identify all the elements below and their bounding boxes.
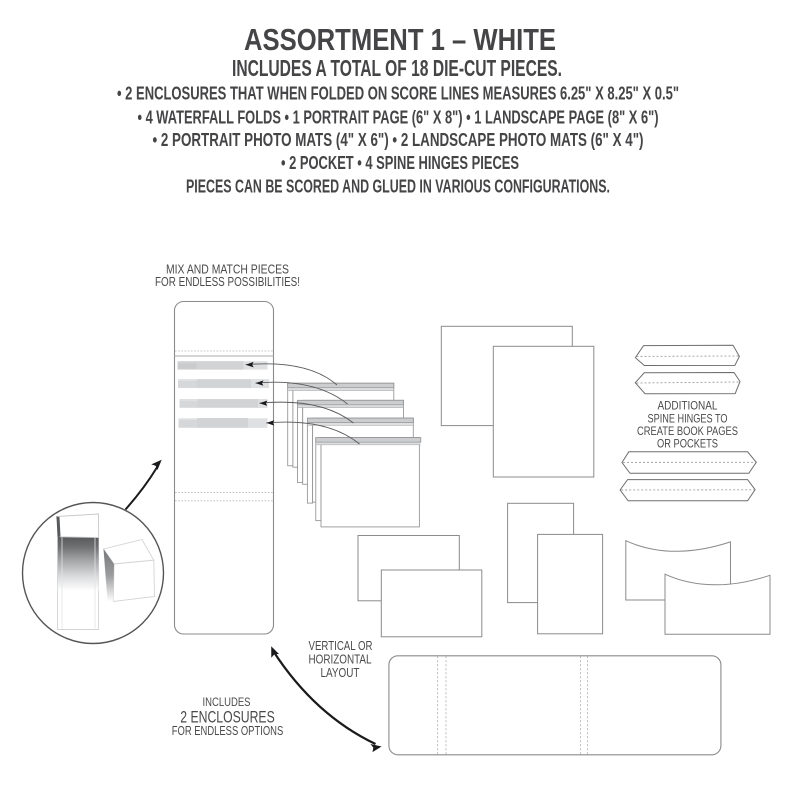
- svg-text:LAYOUT: LAYOUT: [321, 665, 360, 680]
- svg-text:• 2 ENCLOSURES THAT WHEN FOLDE: • 2 ENCLOSURES THAT WHEN FOLDED ON SCORE…: [117, 83, 679, 104]
- svg-text:OR POCKETS: OR POCKETS: [657, 437, 718, 451]
- svg-text:• 2 PORTRAIT PHOTO MATS (4" X: • 2 PORTRAIT PHOTO MATS (4" X 6") • 2 LA…: [153, 129, 644, 150]
- svg-text:FOR ENDLESS POSSIBILITIES!: FOR ENDLESS POSSIBILITIES!: [155, 275, 300, 289]
- svg-text:FOR ENDLESS OPTIONS: FOR ENDLESS OPTIONS: [172, 723, 284, 738]
- svg-text:ASSORTMENT 1 – WHITE: ASSORTMENT 1 – WHITE: [244, 22, 556, 57]
- svg-text:• 2 POCKET • 4 SPINE HINGES PI: • 2 POCKET • 4 SPINE HINGES PIECES: [281, 152, 519, 173]
- svg-text:• 4 WATERFALL FOLDS • 1 PORTRA: • 4 WATERFALL FOLDS • 1 PORTRAIT PAGE (6…: [138, 107, 659, 128]
- svg-text:INCLUDES: INCLUDES: [203, 695, 251, 709]
- svg-text:INCLUDES A TOTAL OF 18 DIE-CUT: INCLUDES A TOTAL OF 18 DIE-CUT PIECES.: [232, 55, 562, 81]
- svg-text:PIECES CAN BE SCORED AND GLUED: PIECES CAN BE SCORED AND GLUED IN VARIOU…: [186, 176, 610, 197]
